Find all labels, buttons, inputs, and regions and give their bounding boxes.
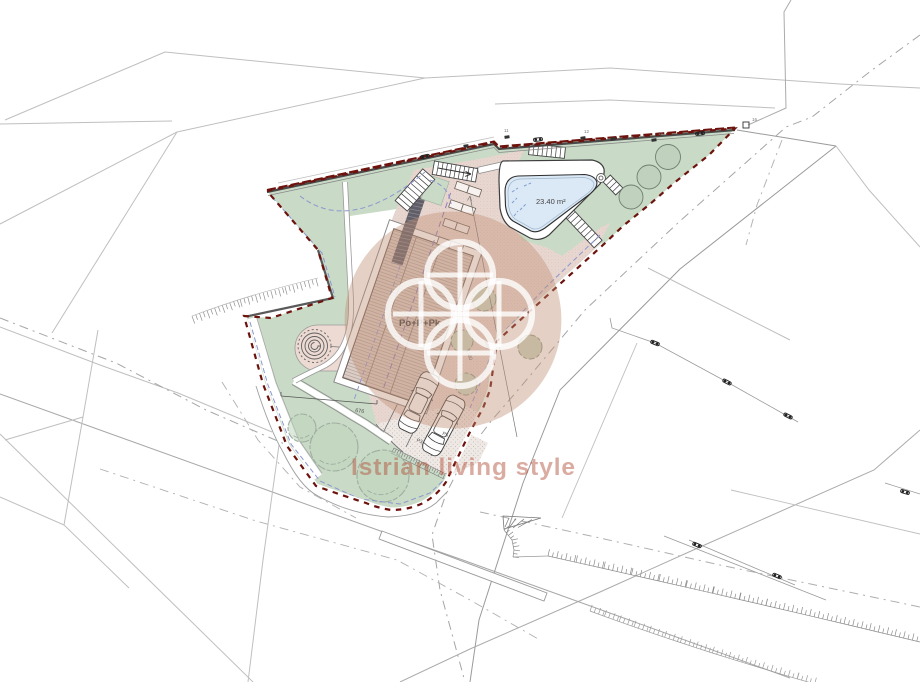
- svg-text:676: 676: [355, 408, 365, 415]
- svg-text:12: 12: [584, 129, 590, 134]
- svg-text:Istrian living style: Istrian living style: [351, 454, 576, 481]
- svg-text:16: 16: [752, 117, 758, 122]
- svg-text:14: 14: [658, 131, 664, 136]
- svg-text:11: 11: [504, 128, 509, 133]
- svg-text:23.40 m²: 23.40 m²: [536, 197, 566, 206]
